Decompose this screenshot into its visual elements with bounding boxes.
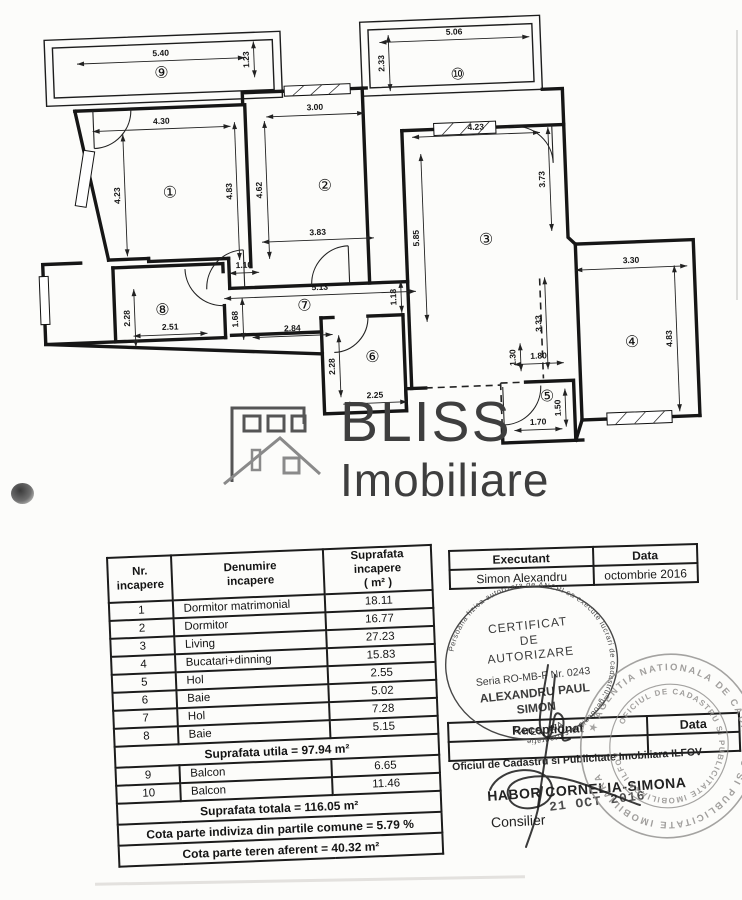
scan-smear: [95, 875, 525, 886]
room-number: ②: [317, 175, 332, 195]
room-number: ③: [479, 229, 494, 249]
dimension: 1.50: [552, 389, 569, 428]
dimension-labels: 5.401.234.304.234.833.004.623.831.105.06…: [76, 18, 693, 449]
officer-title: Consilier: [491, 812, 546, 831]
room-rows: 1Dormitor matrimonial18.112Dormitor16.77…: [109, 590, 439, 747]
header-denumire: Denumire incapere: [171, 549, 324, 600]
header-suprafata: Suprafata incapere ( m² ): [323, 545, 433, 595]
room-number: ④: [625, 332, 640, 352]
dimension: 1.30: [507, 343, 523, 372]
dimension: 4.30: [92, 113, 230, 134]
dimension: 5.85: [408, 154, 430, 322]
dimension-label: 2.51: [162, 321, 179, 332]
dimension: 3.83: [262, 225, 375, 245]
dimension: 2.28: [326, 335, 344, 398]
dimension-label: 3.73: [536, 171, 547, 188]
ocpi-star: ★: [587, 721, 600, 735]
dimension-label: 3.00: [306, 102, 323, 113]
dimension-label: 5.13: [311, 282, 328, 293]
stamp-line-autorizare: AUTORIZARE: [487, 644, 575, 667]
brand-subtitle: Imobiliare: [340, 457, 549, 503]
room-number: ⑩: [450, 64, 465, 84]
room-number: ⑧: [155, 300, 170, 320]
dimension-label: 3.33: [533, 315, 544, 332]
dimension-label: 4.83: [664, 330, 675, 347]
dimension: 1.18: [388, 281, 405, 314]
dimension-label: 1.80: [530, 350, 547, 361]
dimension: 5.06: [379, 24, 529, 45]
dimension-label: 2.28: [327, 358, 338, 375]
dimension-label: 2.28: [122, 310, 133, 327]
dimension-label: 2.84: [284, 323, 301, 334]
dimension-label: 1.68: [230, 311, 241, 328]
room-number: ⑦: [297, 295, 312, 315]
dimension-label: 4.83: [224, 183, 235, 200]
dimension-label: 4.23: [467, 122, 484, 133]
dimension: 1.23: [240, 41, 257, 78]
dimension-label: 4.23: [112, 187, 123, 204]
dimension-label: 1.30: [507, 349, 518, 366]
dimension-label: 1.10: [235, 260, 252, 271]
dimension-label: 5.85: [411, 230, 422, 247]
dimension: 2.28: [121, 289, 139, 348]
stamp-name-2: SIMON: [516, 699, 557, 717]
dimension-label: 4.62: [254, 181, 265, 198]
stamp-line-de: DE: [519, 632, 539, 648]
dimension: 3.30: [575, 253, 688, 273]
bliss-imobiliare-watermark: BLISS Imobiliare: [222, 394, 549, 503]
dimension: 4.23: [110, 134, 130, 257]
dimension: 4.83: [661, 265, 682, 411]
room-number: ①: [162, 182, 177, 202]
scanned-cadastral-document: 5.401.234.304.234.833.004.623.831.105.06…: [0, 0, 742, 900]
dimension-label: 5.06: [446, 26, 463, 37]
dimension-label: 2.33: [376, 55, 387, 72]
scan-blob-artifact: [11, 483, 34, 504]
dimension-label: 3.30: [623, 255, 640, 266]
dimension-label: 3.83: [309, 227, 326, 238]
dimension-label: 5.40: [152, 48, 169, 59]
bliss-logo-house-icon: [222, 394, 324, 488]
ocpi-inner-ring-text: OFICIUL DE CADASTRU SI PUBLICITATE IMOBI…: [600, 675, 738, 817]
dimension: 3.73: [535, 127, 554, 232]
dimension: 4.62: [251, 121, 272, 259]
dimension-label: 4.30: [153, 116, 170, 127]
area-table: Nr. incapere Denumire incapere Suprafata…: [106, 544, 444, 868]
room-number: ⑨: [154, 63, 169, 83]
ocpi-outer-ring-text: AGENTIA NATIONALA DE CADASTRU SI PUBLICI…: [570, 645, 742, 848]
room-number: ⑥: [365, 347, 380, 367]
dimension: 3.00: [266, 100, 365, 119]
dimension: 4.83: [221, 122, 242, 260]
dimension-label: 1.23: [241, 51, 252, 68]
brand-name: BLISS: [340, 394, 549, 451]
dimension-label: 1.18: [388, 288, 399, 305]
header-nr-incapere: Nr. incapere: [107, 555, 173, 603]
dimension: 2.51: [133, 320, 208, 338]
